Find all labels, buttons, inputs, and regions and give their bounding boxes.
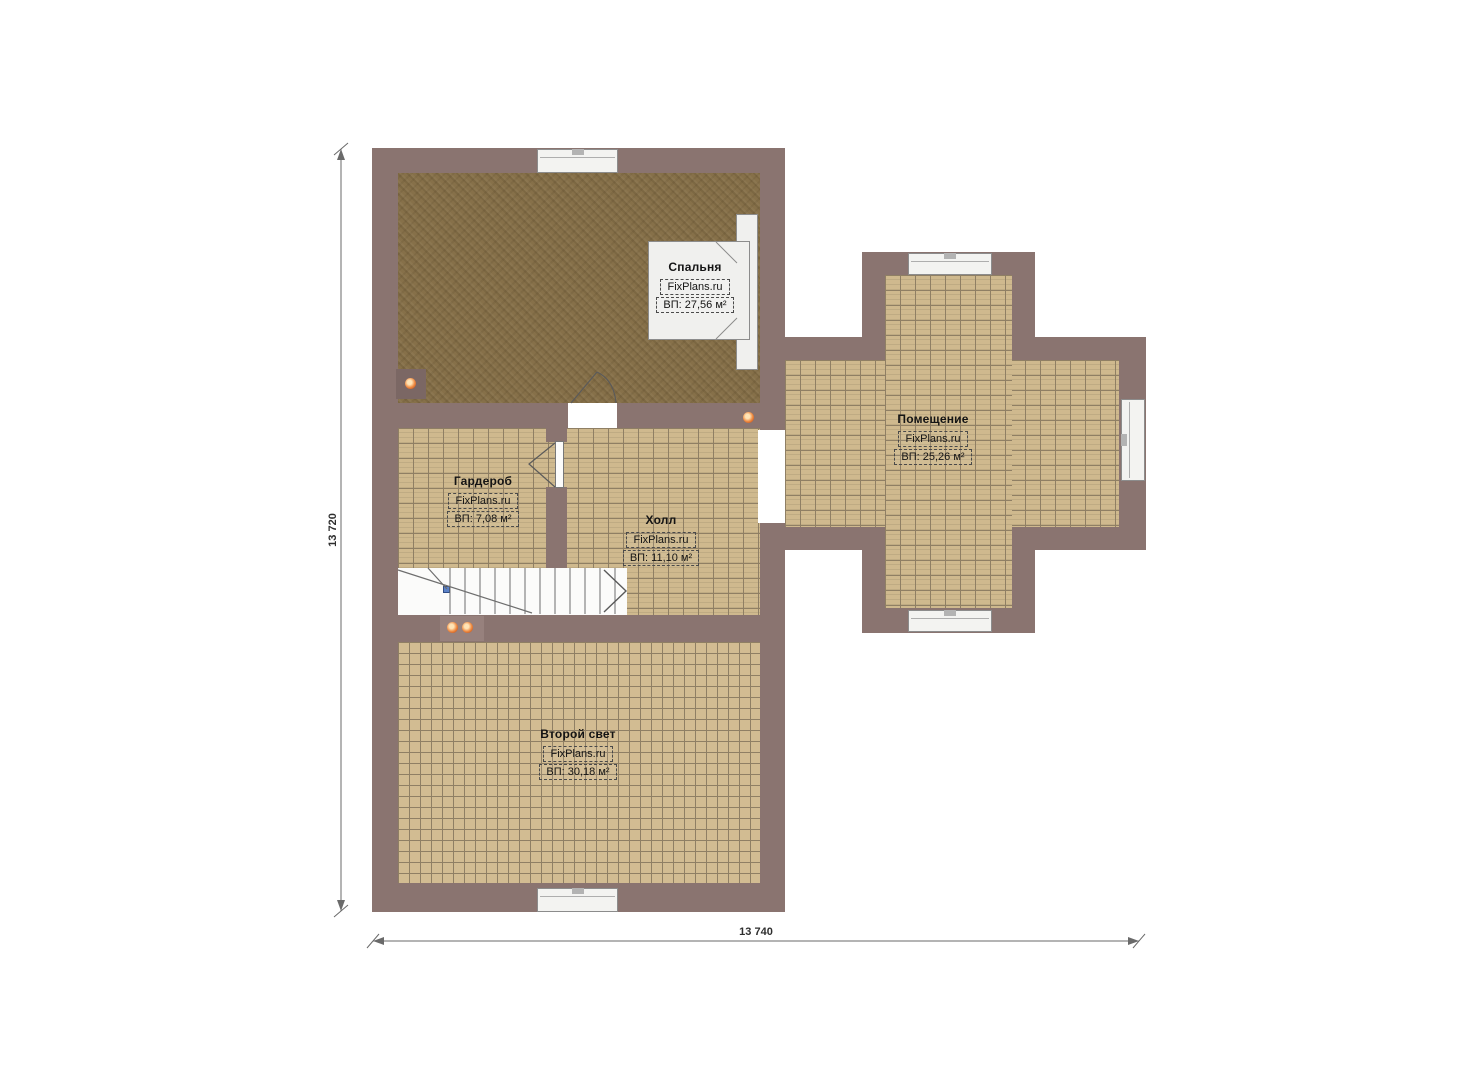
hall-premise-passage [758,430,785,523]
dimension-bottom-label: 13 740 [716,926,796,938]
floor-plan-canvas: Спальня FixPlans.ru ВП: 27,56 м² Помещен… [0,0,1474,1080]
room-label-bedroom: Спальня FixPlans.ru ВП: 27,56 м² [640,260,750,313]
ceiling-light-icon [462,622,473,633]
window-main-top [537,149,618,173]
ceiling-light-icon [447,622,458,633]
dimension-left-label: 13 720 [327,500,339,560]
wardrobe-door-leaf [555,441,564,488]
wardrobe-wall-stub [546,428,567,442]
wardrobe-divider-wall [546,487,567,571]
room-brand: FixPlans.ru [543,746,612,762]
room-name: Холл [646,513,677,527]
window-main-bottom [537,888,618,912]
room-name: Помещение [897,412,968,426]
staircase [398,568,627,615]
bedroom-door-opening [568,403,617,428]
room-label-premise: Помещение FixPlans.ru ВП: 25,26 м² [878,412,988,465]
room-name: Гардероб [454,474,512,488]
room-area: ВП: 27,56 м² [656,297,733,313]
room-label-wardrobe: Гардероб FixPlans.ru ВП: 7,08 м² [428,474,538,527]
room-name: Второй свет [540,727,615,741]
room-brand: FixPlans.ru [660,279,729,295]
room-label-second-light: Второй свет FixPlans.ru ВП: 30,18 м² [523,727,633,780]
room-area: ВП: 11,10 м² [623,550,699,566]
room-brand: FixPlans.ru [898,431,967,447]
room-label-hall: Холл FixPlans.ru ВП: 11,10 м² [606,513,716,566]
room-area: ВП: 25,26 м² [894,449,971,465]
room-brand: FixPlans.ru [626,532,695,548]
room-brand: FixPlans.ru [448,493,517,509]
window-premise-bottom [908,610,992,632]
stair-node-marker [443,586,450,593]
room-area: ВП: 30,18 м² [539,764,616,780]
window-premise-top [908,253,992,275]
ceiling-light-icon [743,412,754,423]
room-area: ВП: 7,08 м² [447,511,518,527]
ceiling-light-icon [405,378,416,389]
window-premise-right [1121,399,1145,481]
room-name: Спальня [668,260,721,274]
